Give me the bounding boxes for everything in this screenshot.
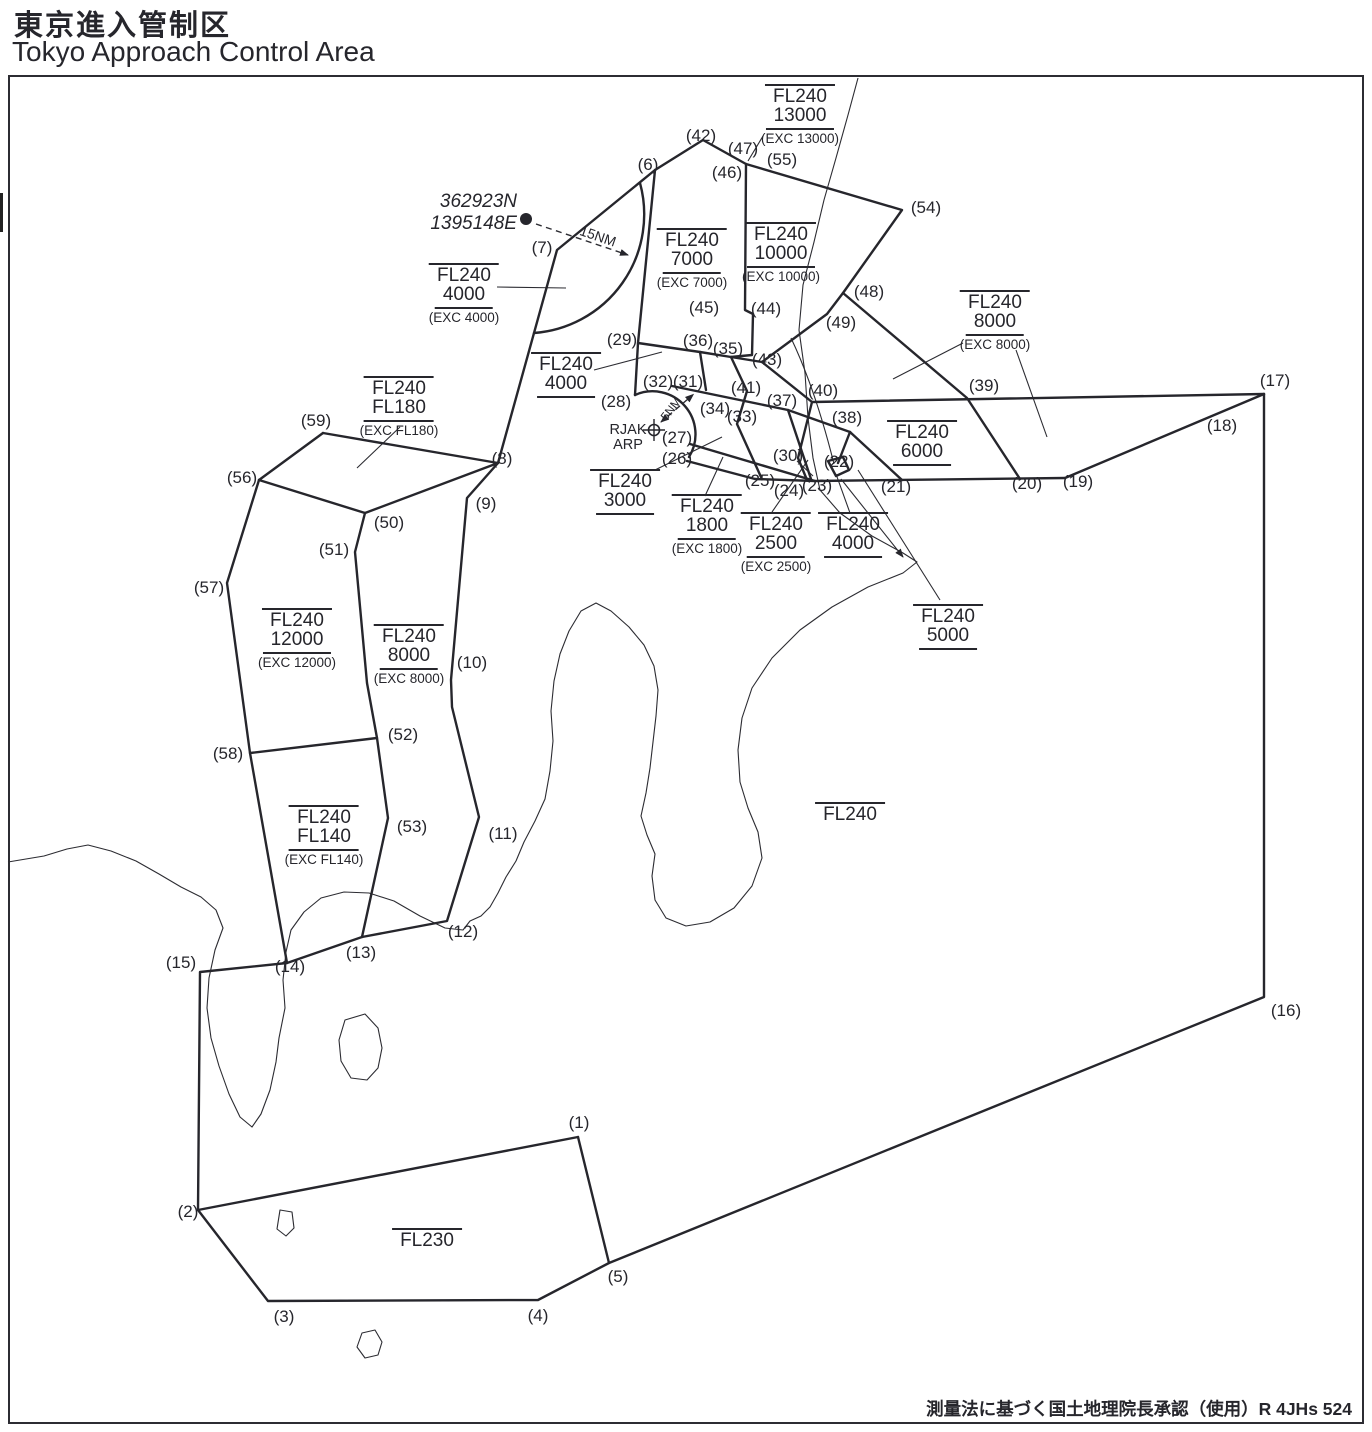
left-edge-mark — [0, 193, 3, 232]
map-frame — [8, 75, 1364, 1424]
survey-attribution: 測量法に基づく国土地理院長承認（使用）R 4JHs 524 — [926, 1396, 1352, 1421]
page: { "header": { "title_ja": "東京進入管制区", "ti… — [0, 0, 1372, 1432]
page-title-english: Tokyo Approach Control Area — [12, 36, 375, 68]
